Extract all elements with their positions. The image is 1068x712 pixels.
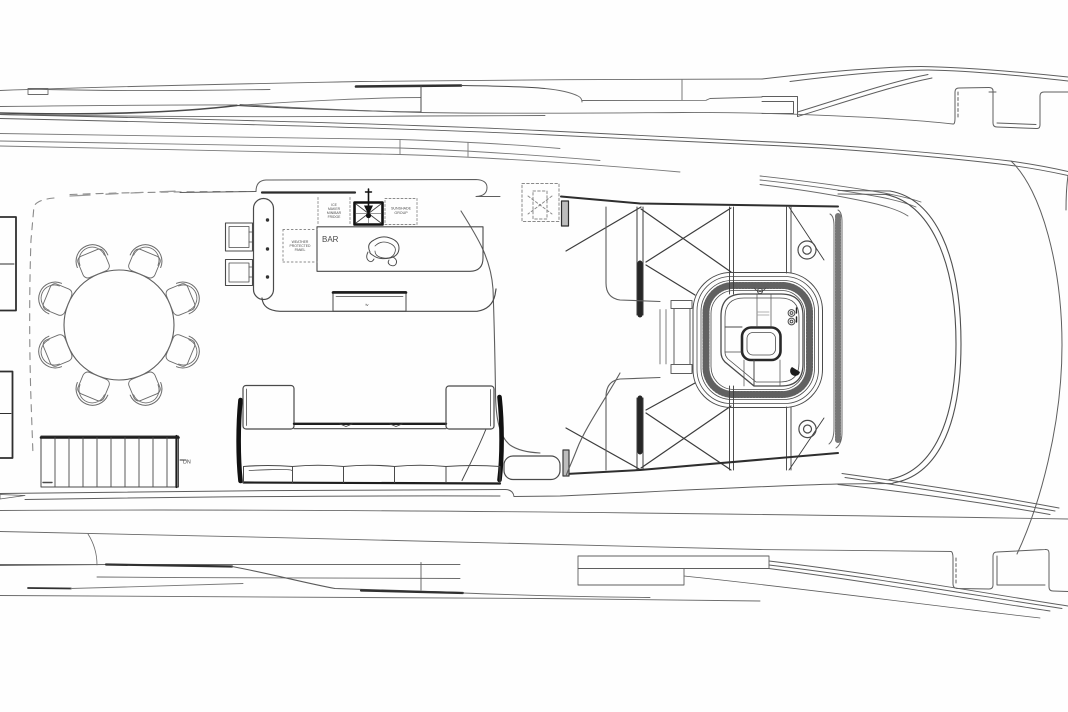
svg-text:tv: tv [365,302,368,307]
svg-text:GROUP: GROUP [394,211,408,215]
svg-text:FRIDGE: FRIDGE [328,215,342,219]
svg-text:PANEL: PANEL [295,248,306,252]
svg-text:DN: DN [183,460,191,466]
svg-text:BAR: BAR [322,235,339,244]
svg-text:SUNSHADE: SUNSHADE [391,207,412,211]
